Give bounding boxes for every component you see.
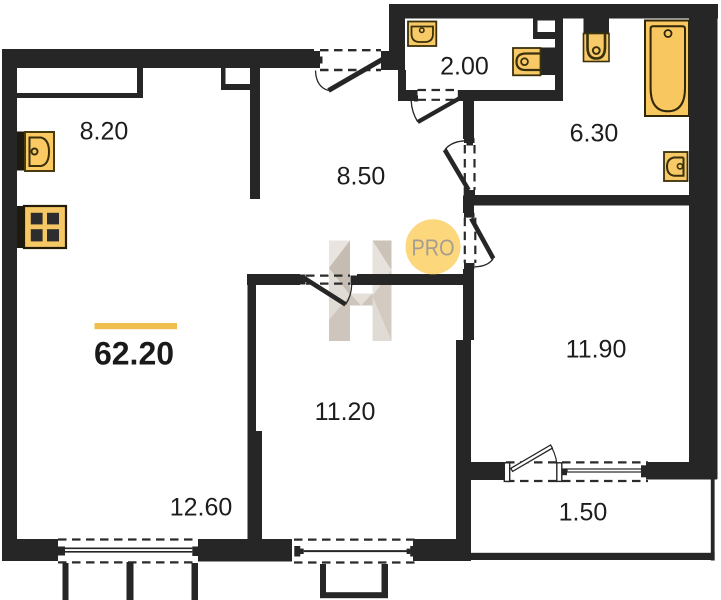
svg-text:8.20: 8.20 [80,118,129,146]
svg-text:2.00: 2.00 [440,53,489,81]
svg-text:8.50: 8.50 [337,163,386,191]
svg-text:6.30: 6.30 [570,120,619,148]
svg-text:11.90: 11.90 [566,336,627,364]
svg-text:12.60: 12.60 [170,494,233,522]
svg-text:11.20: 11.20 [315,398,376,426]
svg-text:62.20: 62.20 [94,336,174,372]
svg-text:PRO: PRO [412,235,455,261]
svg-text:1.50: 1.50 [559,499,608,527]
